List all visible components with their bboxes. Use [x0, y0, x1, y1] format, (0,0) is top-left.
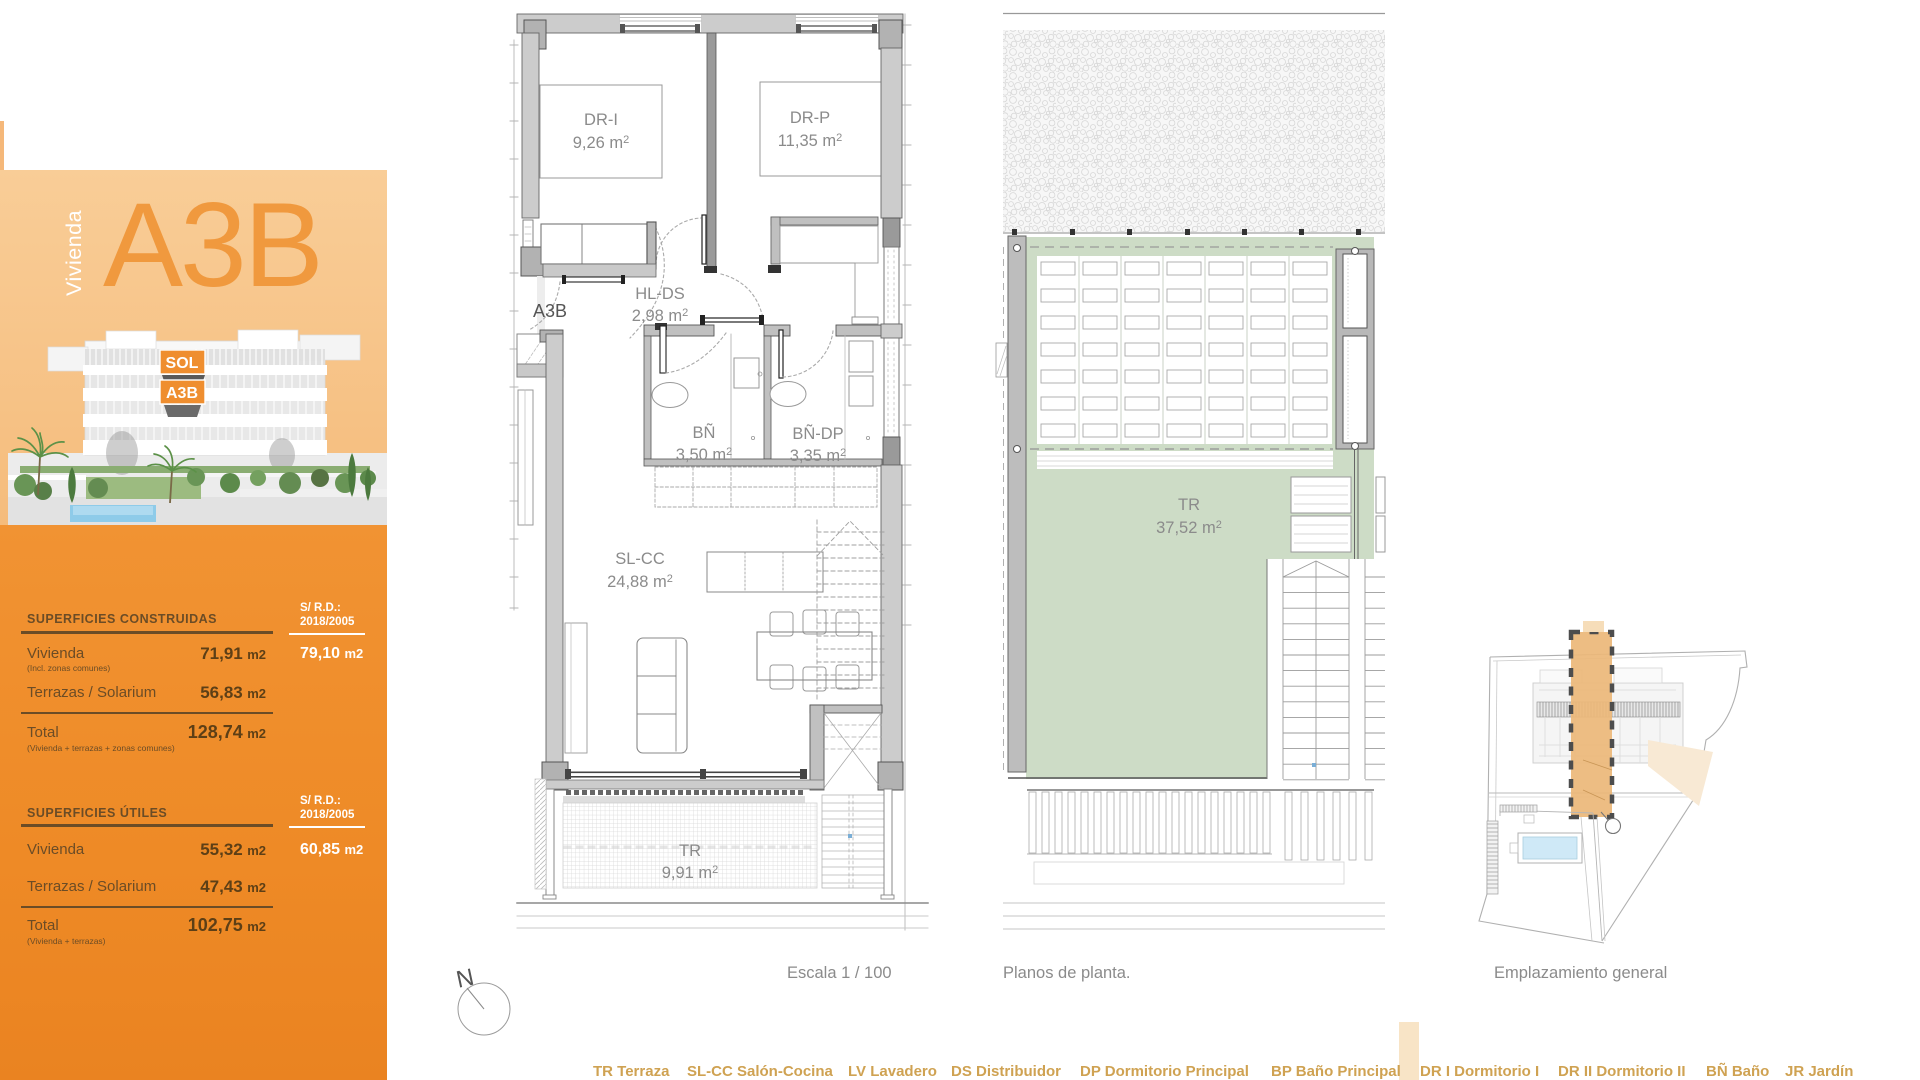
svg-text:37,52 m2: 37,52 m2 — [1156, 519, 1222, 537]
svg-text:SL-CC: SL-CC — [615, 550, 665, 568]
svg-text:TR: TR — [679, 842, 701, 860]
svg-text:3,50 m2: 3,50 m2 — [676, 446, 733, 464]
svg-text:11,35 m2: 11,35 m2 — [778, 132, 843, 150]
svg-text:DR-P: DR-P — [790, 109, 830, 127]
svg-text:BÑ: BÑ — [693, 422, 716, 442]
svg-text:Planos de planta.: Planos de planta. — [1003, 964, 1131, 982]
svg-text:BÑ-DP: BÑ-DP — [792, 423, 843, 443]
svg-text:2,98 m2: 2,98 m2 — [632, 307, 689, 325]
svg-text:9,91 m2: 9,91 m2 — [662, 864, 719, 882]
svg-text:Emplazamiento general: Emplazamiento general — [1494, 964, 1667, 982]
svg-text:3,35 m2: 3,35 m2 — [790, 447, 847, 465]
svg-text:N: N — [454, 964, 477, 994]
svg-text:TR: TR — [1178, 496, 1200, 514]
svg-text:9,26 m2: 9,26 m2 — [573, 134, 630, 152]
svg-text:A3B: A3B — [533, 301, 567, 321]
svg-text:Escala 1 / 100: Escala 1 / 100 — [787, 964, 892, 982]
svg-text:24,88 m2: 24,88 m2 — [607, 573, 673, 591]
svg-text:HL-DS: HL-DS — [635, 285, 685, 303]
svg-text:DR-I: DR-I — [584, 111, 618, 129]
